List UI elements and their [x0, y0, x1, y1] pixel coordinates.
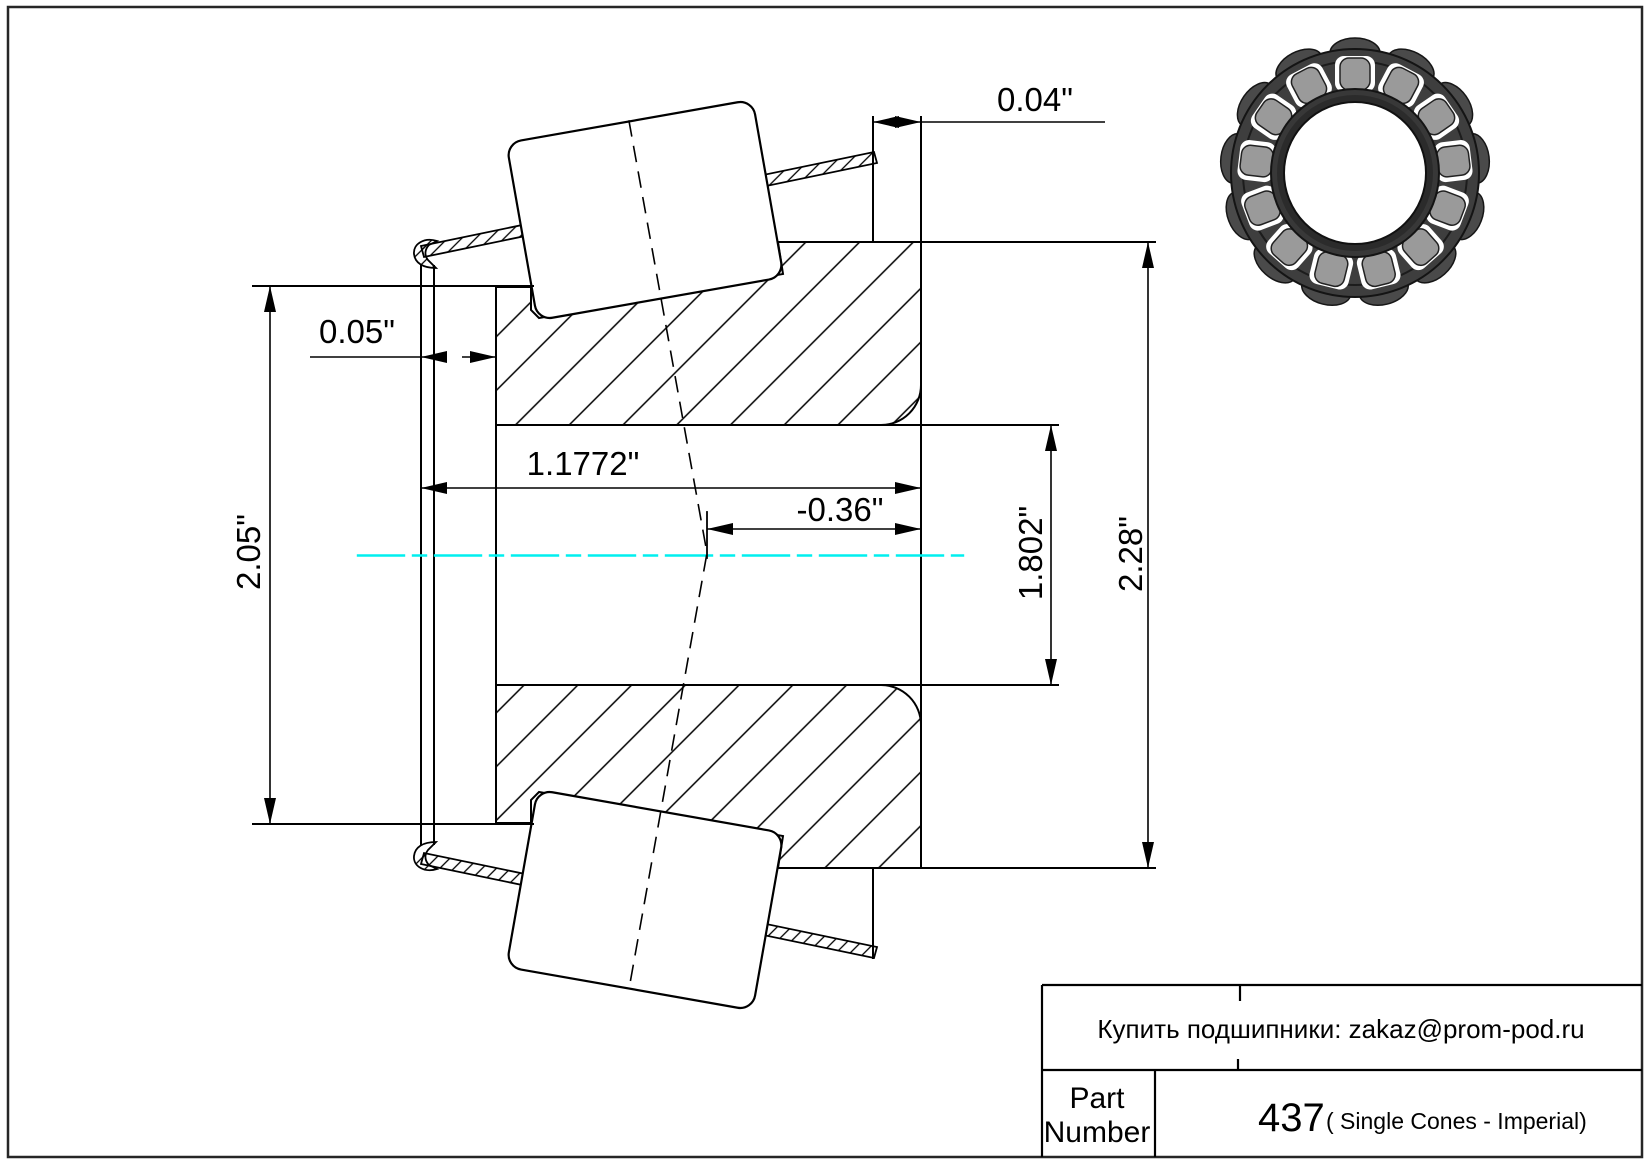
bearing-roller [1436, 144, 1471, 178]
dim-flange-diameter: 2.05" [230, 286, 276, 824]
title-block: Купить подшипники: zakaz@prom-pod.ru Par… [1042, 985, 1642, 1157]
bearing-photo [1218, 38, 1492, 310]
dim-bore-diameter: 1.802" [1012, 425, 1057, 685]
dim-outer-diameter-label: 2.28" [1112, 516, 1149, 592]
bearing-roller [1239, 144, 1274, 178]
dim-backface-offset-label: 0.04" [997, 81, 1073, 118]
title-block-contact: Купить подшипники: zakaz@prom-pod.ru [1097, 1014, 1584, 1044]
dim-backface-offset: 0.04" [873, 81, 1105, 128]
technical-drawing-canvas: 0.04" 0.05" 1.1772" -0.36" [0, 0, 1649, 1167]
bearing-bore-hole [1284, 102, 1426, 244]
dim-bore-diameter-label: 1.802" [1012, 506, 1049, 600]
dim-effective-center: -0.36" [707, 491, 921, 535]
dim-outer-diameter: 2.28" [1112, 242, 1154, 868]
part-number-value: 437 [1258, 1096, 1325, 1140]
dim-lip-clearance-label: 0.05" [319, 313, 395, 350]
dim-lip-clearance: 0.05" [310, 313, 496, 363]
bearing-roller [1340, 58, 1370, 90]
drawing-page: 0.04" 0.05" 1.1772" -0.36" [0, 0, 1649, 1167]
part-series-label: ( Single Cones - Imperial) [1326, 1108, 1587, 1134]
dim-overall-width-label: 1.1772" [527, 445, 640, 482]
part-number-label-line2: Number [1044, 1116, 1151, 1149]
part-number-label-line1: Part [1069, 1082, 1125, 1115]
dim-effective-center-label: -0.36" [797, 491, 884, 528]
dim-flange-diameter-label: 2.05" [230, 514, 267, 590]
